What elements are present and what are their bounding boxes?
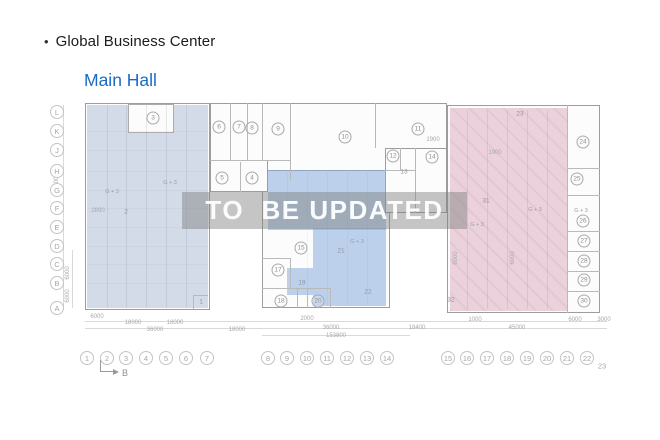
dimension-label: 45000	[509, 325, 526, 331]
wall-line	[400, 148, 401, 170]
axis-col-label: 7	[200, 351, 214, 365]
dimension-label: 1000	[468, 317, 481, 323]
annotation-label: G + 3	[574, 208, 588, 214]
dimension-label: 18400	[409, 325, 426, 331]
wall-line	[567, 168, 600, 169]
wall-line	[290, 258, 291, 288]
grid-line	[87, 246, 208, 247]
wall-line	[567, 251, 600, 252]
annotation-label: G + 3	[350, 239, 364, 245]
axis-col-label: 15	[441, 351, 455, 365]
dimension-label: 2000	[300, 316, 313, 322]
section-marker-line	[100, 371, 114, 372]
grid-line	[107, 105, 108, 308]
room-label: 22	[364, 289, 371, 296]
room-label: 4	[246, 172, 259, 185]
wall-line	[262, 258, 290, 259]
room-label: 26	[577, 215, 590, 228]
wall-line	[193, 295, 208, 296]
dimension-label: 6000	[65, 266, 71, 279]
room-label: 2	[124, 209, 128, 216]
axis-col-label: 3	[119, 351, 133, 365]
wall-line	[567, 231, 600, 232]
axis-col-label: 5	[159, 351, 173, 365]
axis-col-label: 20	[540, 351, 554, 365]
annotation-label: G + 3	[105, 189, 119, 195]
wall-line	[567, 105, 568, 313]
axis-row-label: E	[50, 220, 64, 234]
axis-col-label: 4	[139, 351, 153, 365]
room-label: 13	[400, 169, 407, 176]
bullet-icon: •	[44, 34, 49, 49]
axis-row-label: D	[50, 239, 64, 253]
dimension-label: 18000	[229, 327, 246, 333]
dimension-label: 1900	[488, 150, 501, 156]
dimension-label: 6000	[65, 289, 71, 302]
axis-col-label: 1	[80, 351, 94, 365]
room-label: 28	[578, 255, 591, 268]
axis-row-label: J	[50, 143, 64, 157]
axis-col-label: 21	[560, 351, 574, 365]
axis-col-label: 2	[100, 351, 114, 365]
room-label: 7	[233, 121, 246, 134]
axis-col-label: 6	[179, 351, 193, 365]
wall-line	[307, 288, 308, 308]
axis-row-label: H	[50, 164, 64, 178]
wall-line	[567, 291, 600, 292]
axis-col-label: 16	[460, 351, 474, 365]
room-label: 30	[578, 295, 591, 308]
dimension-label: 3000	[597, 317, 610, 323]
wall-line	[567, 271, 600, 272]
axis-col-label: 17	[480, 351, 494, 365]
annotation-label: G + 3	[528, 207, 542, 213]
room-label: 29	[578, 274, 591, 287]
section-marker-arrow-icon	[113, 369, 119, 375]
dimension-line	[85, 321, 607, 322]
dimension-line	[72, 250, 73, 308]
room-label: 15	[295, 242, 308, 255]
wall-line	[567, 195, 600, 196]
axis-col-label: 8	[261, 351, 275, 365]
axis-row-label: B	[50, 276, 64, 290]
wall-line	[210, 160, 290, 161]
room-label: 17	[272, 264, 285, 277]
room-label: 11	[412, 123, 425, 136]
room-label: 10	[339, 131, 352, 144]
grid-line	[507, 110, 508, 309]
axis-col-label: 9	[280, 351, 294, 365]
room-label: 32	[447, 297, 454, 304]
axis-col-label: 14	[380, 351, 394, 365]
axis-row-label: F	[50, 201, 64, 215]
grid-line	[87, 150, 208, 151]
room-label: 3	[147, 112, 160, 125]
room-label: 24	[577, 136, 590, 149]
axis-col-label: 10	[300, 351, 314, 365]
axis-col-label: 23	[598, 362, 606, 371]
watermark-band: TO BE UPDATED	[182, 192, 467, 229]
axis-col-label: 11	[320, 351, 334, 365]
dimension-label: 6000	[568, 317, 581, 323]
grid-line	[487, 110, 488, 309]
grid-line	[87, 131, 208, 132]
axis-col-label: 22	[580, 351, 594, 365]
dimension-label: 6000	[90, 314, 103, 320]
room-label: 9	[272, 123, 285, 136]
room-label: 23	[516, 111, 523, 118]
room-label: 14	[426, 151, 439, 164]
room-label: 12	[387, 150, 400, 163]
wall-line	[262, 288, 330, 289]
grid-line	[547, 110, 548, 309]
room-label: 27	[578, 235, 591, 248]
dimension-label: 153800	[326, 333, 346, 339]
wall-line	[290, 103, 291, 180]
room-label: 25	[571, 173, 584, 186]
grid-line	[146, 105, 147, 308]
room-label: 31	[482, 198, 489, 205]
wall-line	[262, 103, 263, 160]
dimension-label: 36000	[323, 325, 340, 331]
dimension-label: 6000	[510, 251, 516, 264]
room-label: 1	[199, 299, 203, 306]
axis-row-label: A	[50, 301, 64, 315]
room-label: 8	[246, 122, 259, 135]
wall-line	[193, 295, 194, 309]
annotation-label: G + 3	[163, 180, 177, 186]
room-label: 5	[216, 172, 229, 185]
wall-line	[375, 103, 376, 148]
grid-line	[87, 264, 208, 265]
wall-line	[240, 162, 241, 192]
dimension-label: 18000	[125, 320, 142, 326]
axis-row-label: C	[50, 257, 64, 271]
room-label: 6	[213, 121, 226, 134]
grid-line	[467, 110, 468, 309]
grid-line	[87, 171, 208, 172]
dimension-label: 6000	[453, 251, 459, 264]
dimension-label: 36000	[147, 327, 164, 333]
axis-row-label: L	[50, 105, 64, 119]
room-label: 20	[312, 295, 325, 308]
room-label: 19	[298, 280, 305, 287]
axis-row-label: G	[50, 183, 64, 197]
grid-line	[87, 283, 208, 284]
room-label: 21	[337, 248, 344, 255]
wall-line	[297, 288, 298, 308]
wall-line	[330, 288, 331, 308]
axis-col-label: 18	[500, 351, 514, 365]
dimension-label: 18000	[167, 320, 184, 326]
axis-col-label: 13	[360, 351, 374, 365]
section-marker-label: B	[122, 368, 128, 378]
dimension-label: 2890	[91, 208, 104, 214]
dimension-label: 1900	[426, 137, 439, 143]
grid-line	[126, 105, 127, 308]
annotation-label: G + 3	[470, 222, 484, 228]
watermark-text: TO BE UPDATED	[205, 195, 443, 226]
axis-col-label: 19	[520, 351, 534, 365]
wall-line	[230, 103, 231, 160]
grid-line	[166, 105, 167, 308]
axis-row-label: K	[50, 124, 64, 138]
hall-title-link[interactable]: Main Hall	[84, 70, 157, 91]
axis-col-label: 12	[340, 351, 354, 365]
page-title-row: • Global Business Center	[44, 33, 215, 50]
floor-plan: • Global Business Center Main Hall 36789…	[0, 0, 660, 440]
room-label: 18	[275, 295, 288, 308]
page-title: Global Business Center	[56, 33, 216, 50]
